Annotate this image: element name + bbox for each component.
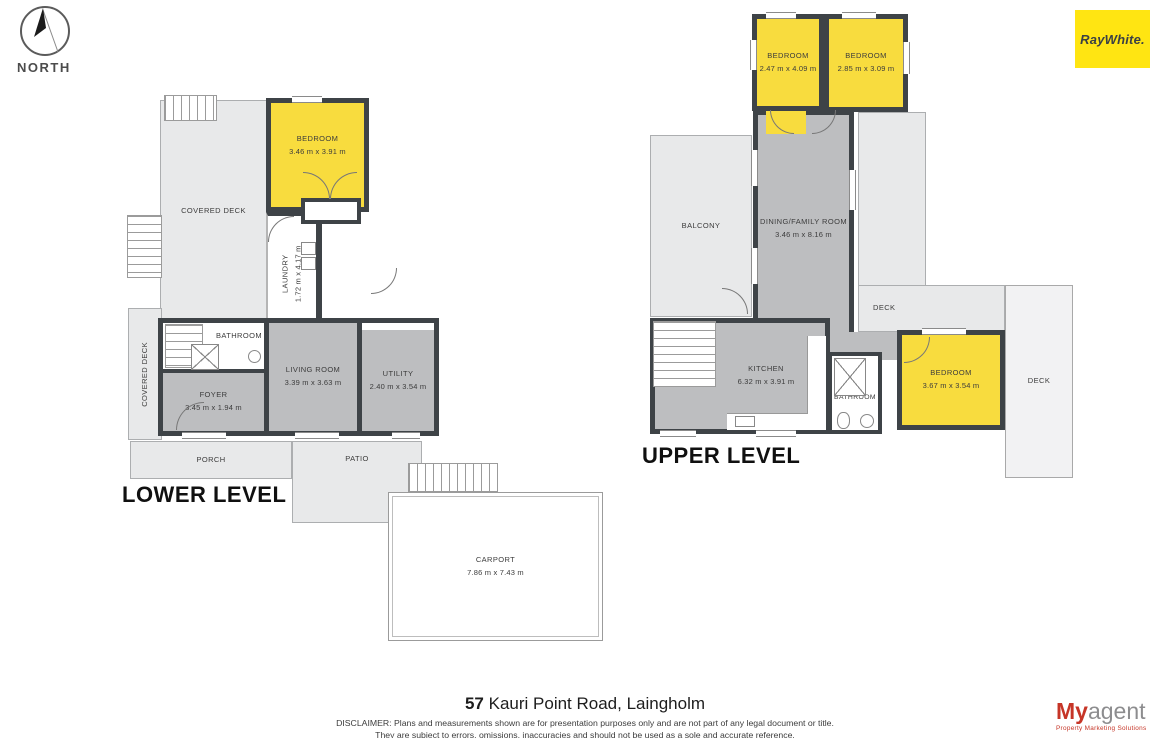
lower-porch: PORCH [130,441,292,479]
north-label: NORTH [17,60,71,75]
window [756,430,796,437]
room-dimensions: 3.46 m x 3.91 m [289,146,346,159]
room-dimensions: 3.67 m x 3.54 m [923,380,980,393]
shower [834,358,866,396]
window [766,12,796,19]
sink [860,414,874,428]
room-label: PORCH [196,454,225,467]
carport: CARPORT 7.86 m x 7.43 m [388,492,603,641]
upper-deck-strip [858,112,926,286]
myagent-tagline: Property Marketing Solutions [1056,725,1156,732]
floorplan-page: NORTH RayWhite. COVERED DECK COVERED DEC… [0,0,1170,738]
room-label: KITCHEN [738,363,795,376]
myagent-logo-bold: My [1056,698,1088,724]
lower-utility: UTILITY 2.40 m x 3.54 m [362,330,434,431]
wardrobe [301,198,361,224]
window [751,248,758,284]
window [750,40,757,70]
lower-living-room: LIVING ROOM 3.39 m x 3.63 m [269,323,357,431]
address-street: Kauri Point Road, Laingholm [484,694,705,713]
room-label: DECK [1028,375,1050,388]
room-label: BATHROOM [210,330,268,343]
lower-covered-deck: COVERED DECK [160,100,267,322]
room-label: COVERED DECK [139,342,152,407]
room-label: BEDROOM [289,133,346,146]
upper-bedroom-2: BEDROOM 2.85 m x 3.09 m [824,14,908,112]
room-label: COVERED DECK [181,205,246,218]
lower-level-title: LOWER LEVEL [122,482,286,508]
disclaimer: DISCLAIMER: Plans and measurements shown… [0,718,1170,738]
window [849,170,856,210]
upper-balcony: BALCONY [650,135,752,317]
room-label: BEDROOM [838,50,895,63]
room-label: DINING/FAMILY ROOM [760,216,847,229]
disclaimer-line-1: DISCLAIMER: Plans and measurements shown… [0,718,1170,730]
window [295,432,339,439]
toilet [837,412,850,429]
room-dimensions: 3.46 m x 8.16 m [760,229,847,242]
room-label: CARPORT [467,554,524,567]
myagent-logo: Myagent Property Marketing Solutions [1056,700,1156,732]
upper-dining-family-room: DINING/FAMILY ROOM 3.46 m x 8.16 m [753,110,854,342]
room-label: UTILITY [370,368,427,381]
lower-covered-deck-side: COVERED DECK [128,308,162,440]
laundry-appliance [301,242,316,255]
room-label: LAUNDRY [279,246,292,303]
room-dimensions: 2.47 m x 4.09 m [760,63,817,76]
room-label: FOYER [185,389,242,402]
window [182,432,226,439]
north-compass-icon [18,4,72,58]
room-label: BEDROOM [760,50,817,63]
property-address: 57 Kauri Point Road, Laingholm [0,694,1170,714]
deck-stairs-left [127,215,162,278]
disclaimer-line-2: They are subject to errors, omissions, i… [0,730,1170,738]
upper-deck-side: DECK [1005,285,1073,478]
laundry-appliance [301,257,316,270]
room-label: BEDROOM [923,367,980,380]
room-label: BALCONY [682,220,721,233]
window [922,328,966,335]
window [903,42,910,74]
door-arc [371,268,397,294]
room-dimensions: 2.40 m x 3.54 m [370,381,427,394]
room-label: LIVING ROOM [285,364,342,377]
upper-level-title: UPPER LEVEL [642,443,800,469]
upper-bedroom-1: BEDROOM 2.47 m x 4.09 m [752,14,824,111]
myagent-logo-light: agent [1088,698,1146,724]
raywhite-logo-text: RayWhite. [1080,32,1145,47]
address-number: 57 [465,694,484,713]
window [842,12,876,19]
stove [735,416,755,427]
window [392,432,420,439]
lower-bathroom: BATHROOM [210,330,268,343]
raywhite-logo: RayWhite. [1075,10,1150,68]
window [292,96,322,103]
room-dimensions: 7.86 m x 7.43 m [467,567,524,580]
carport-stairs [408,463,498,492]
window [660,430,696,437]
upper-deck: DECK [858,285,1005,332]
room-dimensions: 3.39 m x 3.63 m [285,377,342,390]
kitchen-counter [807,336,826,414]
room-label: DECK [873,302,895,315]
room-dimensions: 6.32 m x 3.91 m [738,376,795,389]
kitchen-stairs [653,321,716,387]
room-label: PATIO [345,453,368,466]
room-dimensions: 2.85 m x 3.09 m [838,63,895,76]
deck-stairs-top [164,95,217,121]
shower [191,344,219,370]
window [751,150,758,186]
sink [248,350,261,363]
